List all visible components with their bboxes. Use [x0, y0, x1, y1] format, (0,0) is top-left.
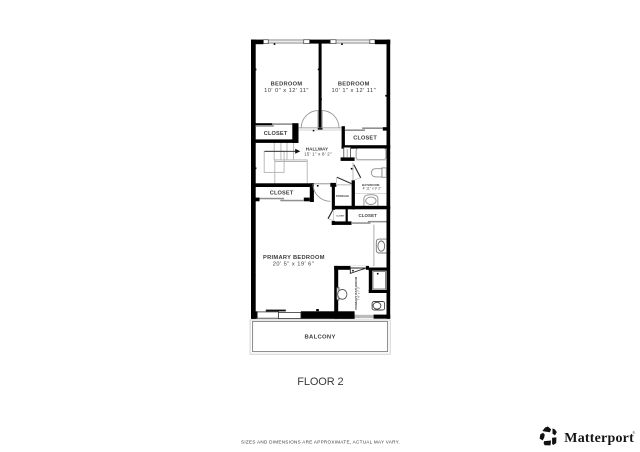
svg-text:CLOSET: CLOSET	[353, 135, 377, 141]
svg-text:15' 1" x 8' 2": 15' 1" x 8' 2"	[304, 151, 332, 156]
svg-text:CLOSET: CLOSET	[264, 131, 288, 137]
svg-text:4' 11" x 9' 2": 4' 11" x 9' 2"	[363, 186, 383, 190]
svg-text:BALCONY: BALCONY	[304, 335, 335, 341]
svg-text:CLOSET: CLOSET	[336, 216, 345, 218]
svg-text:FLOOR 2: FLOOR 2	[297, 376, 343, 388]
svg-text:BEDROOM: BEDROOM	[271, 81, 303, 87]
svg-text:10' 0" x 12' 11": 10' 0" x 12' 11"	[264, 88, 309, 94]
svg-text:BEDROOM: BEDROOM	[338, 81, 370, 87]
svg-text:SIZES AND DIMENSIONS ARE APPRO: SIZES AND DIMENSIONS ARE APPROXIMATE, AC…	[241, 439, 400, 444]
svg-text:Matterport: Matterport	[564, 431, 634, 446]
svg-text:CLOSET: CLOSET	[270, 191, 294, 197]
svg-text:CLOSET: CLOSET	[358, 213, 377, 218]
svg-text:20' 5" x 19' 6": 20' 5" x 19' 6"	[273, 262, 314, 268]
svg-text:PRIMARY BEDROOM: PRIMARY BEDROOM	[263, 255, 325, 261]
svg-text:10' 1" x 12' 11": 10' 1" x 12' 11"	[331, 88, 376, 94]
svg-text:STORAGE: STORAGE	[336, 194, 349, 198]
svg-text:7' 6" x 7' 3": 7' 6" x 7' 3"	[357, 286, 361, 300]
svg-text:®: ®	[632, 430, 635, 435]
